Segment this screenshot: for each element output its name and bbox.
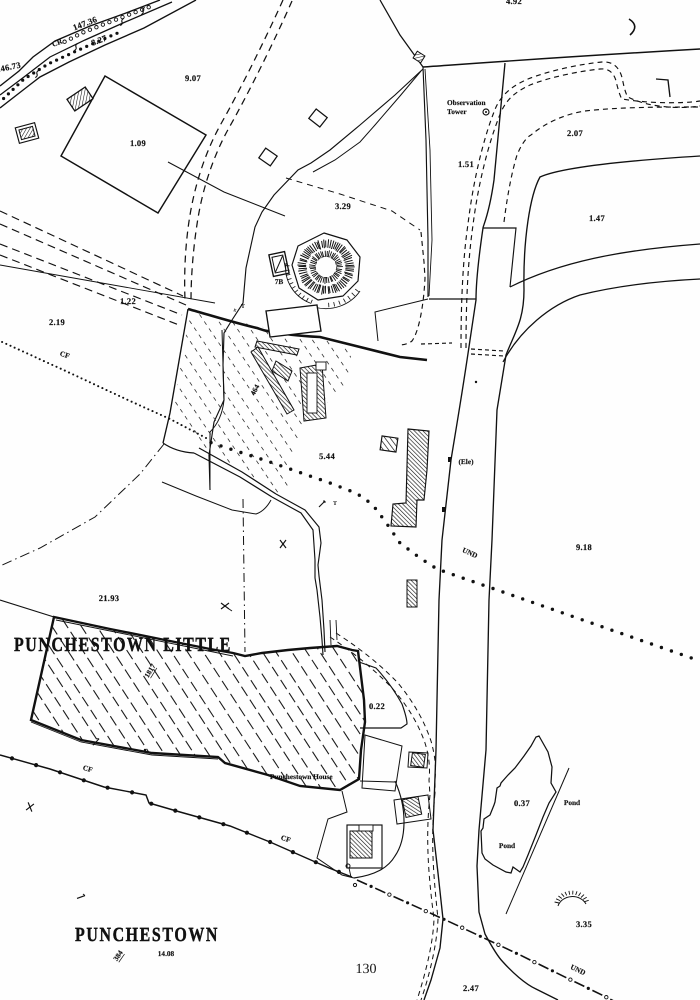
svg-text:2.47: 2.47 [463, 983, 480, 993]
svg-text:Punchestown House: Punchestown House [270, 772, 333, 781]
svg-text:2.07: 2.07 [567, 128, 584, 138]
svg-text:9.07: 9.07 [185, 73, 202, 83]
svg-text:1.22: 1.22 [120, 296, 136, 306]
svg-text:130: 130 [356, 962, 377, 977]
svg-text:2.19: 2.19 [49, 317, 65, 327]
svg-text:T: T [241, 304, 245, 310]
svg-text:T: T [333, 501, 337, 507]
svg-text:0.37: 0.37 [514, 798, 531, 808]
svg-text:3.35: 3.35 [576, 919, 592, 929]
svg-text:7B: 7B [275, 277, 284, 286]
svg-text:14.08: 14.08 [158, 949, 175, 958]
svg-text:5.44: 5.44 [319, 451, 336, 461]
svg-text:PUNCHESTOWN LITTLE: PUNCHESTOWN LITTLE [14, 634, 232, 656]
svg-text:4.92: 4.92 [506, 0, 522, 6]
svg-text:(Ele): (Ele) [459, 457, 475, 466]
svg-text:0.22: 0.22 [369, 701, 385, 711]
svg-text:1.09: 1.09 [130, 138, 146, 148]
svg-text:21.93: 21.93 [99, 593, 120, 603]
svg-text:PUNCHESTOWN: PUNCHESTOWN [75, 924, 219, 946]
svg-text:Pond: Pond [499, 841, 515, 850]
svg-text:3.29: 3.29 [335, 201, 351, 211]
svg-text:9.18: 9.18 [576, 542, 592, 552]
svg-text:Tower: Tower [447, 107, 467, 116]
svg-text:Pond: Pond [564, 798, 580, 807]
svg-text:1.51: 1.51 [458, 159, 474, 169]
svg-text:Observation: Observation [447, 98, 486, 107]
svg-text:1.47: 1.47 [589, 213, 606, 223]
